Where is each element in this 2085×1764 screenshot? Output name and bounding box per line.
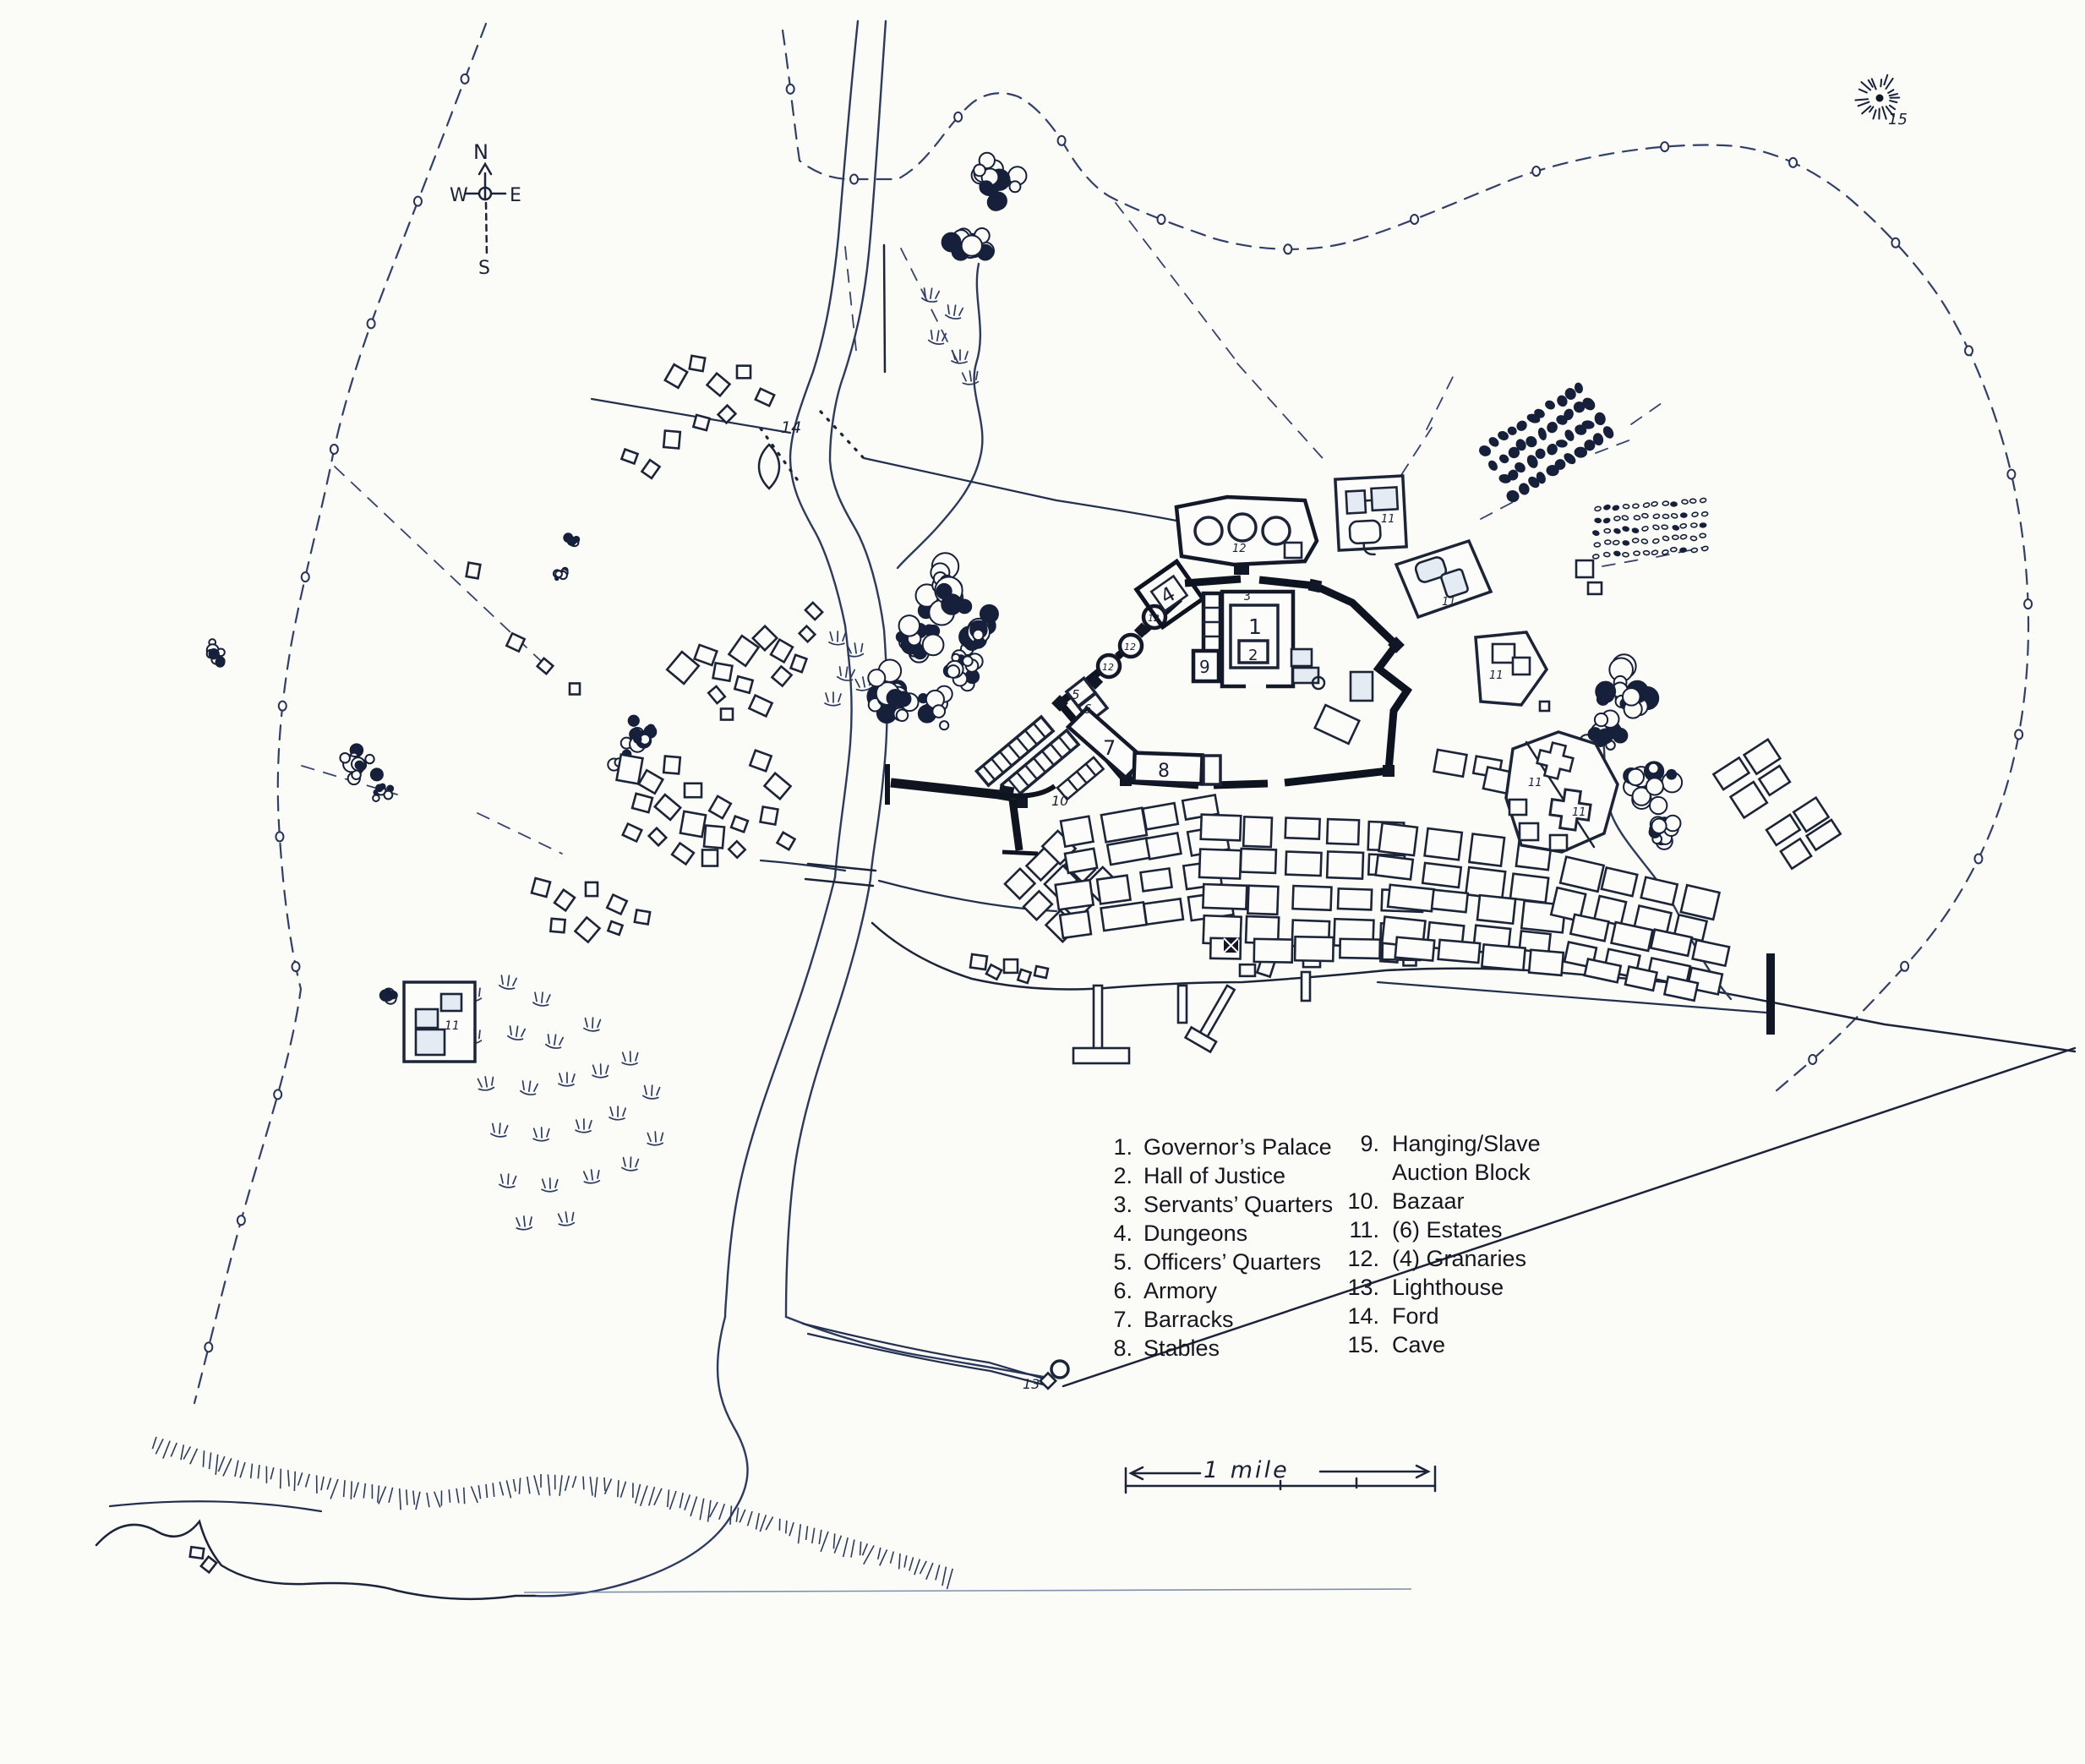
orchard-rows — [1478, 382, 1709, 559]
governors-palace-building — [1222, 592, 1318, 686]
legend-item: 2.Hall of Justice — [1085, 1161, 1333, 1190]
estate-west — [404, 982, 475, 1062]
marker-estate-4: 11 — [1489, 669, 1504, 682]
legend-item: 14.Ford — [1325, 1302, 1541, 1330]
legend-item: 15.Cave — [1325, 1330, 1541, 1359]
marker-granary-4: 12 — [1102, 662, 1114, 673]
estate-north-square — [1335, 476, 1407, 556]
compass-w: W — [450, 185, 468, 206]
marker-estate-5: 11 — [1528, 777, 1542, 789]
granary-compound — [1176, 497, 1317, 575]
legend-item: 7.Barracks — [1085, 1305, 1333, 1334]
legend-item: 12.(4) Granaries — [1325, 1244, 1541, 1273]
compass-rose: N W E S — [450, 140, 521, 279]
marker-bazaar: 10 — [1051, 793, 1068, 809]
legend-item: 4.Dungeons — [1085, 1219, 1333, 1248]
marker-governors-palace: 1 — [1248, 614, 1262, 639]
pond — [759, 445, 779, 489]
river-east-bank — [830, 21, 887, 879]
marker-ford: 14 — [781, 418, 801, 437]
legend-item-wrap: Auction Block — [1325, 1158, 1541, 1187]
compass-e: E — [510, 185, 521, 206]
marker-hall-of-justice: 2 — [1248, 647, 1258, 664]
sea-horizon-line — [524, 1589, 1411, 1592]
legend-item: 6.Armory — [1085, 1276, 1333, 1305]
marker-officers-quarters: 5 — [1072, 687, 1080, 702]
marker-estate-6: 11 — [1572, 806, 1586, 819]
legend-item: 9.Hanging/Slave — [1325, 1129, 1541, 1158]
marker-lighthouse: 13 — [1023, 1376, 1040, 1392]
river-west-bank — [790, 21, 858, 877]
map-drawing: N W E S 1 mile 1 2 3 4 5 6 7 8 9 10 11 1… — [0, 0, 2085, 1764]
citadel-wall-south — [1285, 771, 1389, 783]
legend-item: 10.Bazaar — [1325, 1187, 1541, 1215]
legend-item: 13.Lighthouse — [1325, 1273, 1541, 1302]
estate-pentagon — [1476, 632, 1549, 711]
legend-item: 1.Governor’s Palace — [1085, 1133, 1333, 1161]
northeast-stream — [898, 264, 982, 568]
hand-drawn-town-map: N W E S 1 mile 1 2 3 4 5 6 7 8 9 10 11 1… — [0, 0, 2085, 1764]
marker-servants-quarters: 3 — [1243, 590, 1251, 603]
harbour-piers — [1073, 972, 1310, 1063]
legend-item: 5.Officers’ Quarters — [1085, 1248, 1333, 1276]
marker-estate-3: 11 — [1442, 596, 1456, 609]
marker-granary-3: 12 — [1124, 642, 1136, 653]
marker-stables: 8 — [1158, 761, 1170, 782]
scale-label: 1 mile — [1204, 1457, 1290, 1483]
marker-granary-2: 12 — [1148, 613, 1160, 624]
bay-coastline — [96, 1521, 534, 1599]
legend-column-2: 9.Hanging/Slave Auction Block 10.Bazaar … — [1325, 1129, 1541, 1359]
marsh-tufts — [464, 287, 980, 1231]
marker-estate-2: 11 — [1381, 513, 1395, 526]
marker-auction-block: 9 — [1199, 657, 1210, 677]
marker-cave: 15 — [1888, 111, 1908, 128]
estate-double-compound — [1506, 732, 1618, 852]
marker-estate-1: 11 — [445, 1019, 460, 1033]
coastal-cliff-hatching — [152, 1437, 952, 1589]
marker-granary-1: 12 — [1232, 543, 1247, 555]
legend-column-1: 1.Governor’s Palace 2.Hall of Justice 3.… — [1085, 1133, 1333, 1363]
lighthouse — [1040, 1361, 1068, 1389]
legend-item: 8.Stables — [1085, 1334, 1333, 1363]
marker-barracks: 7 — [1103, 736, 1116, 760]
compass-s: S — [478, 258, 490, 279]
marker-armory: 6 — [1083, 702, 1092, 717]
legend-item: 3.Servants’ Quarters — [1085, 1190, 1333, 1219]
scale-bar: 1 mile — [1126, 1457, 1435, 1493]
ford-crossing — [761, 412, 863, 485]
marked-square — [1224, 938, 1238, 953]
breakwater-bar — [1766, 953, 1775, 1035]
compass-n: N — [473, 140, 489, 164]
legend-item: 11.(6) Estates — [1325, 1215, 1541, 1244]
